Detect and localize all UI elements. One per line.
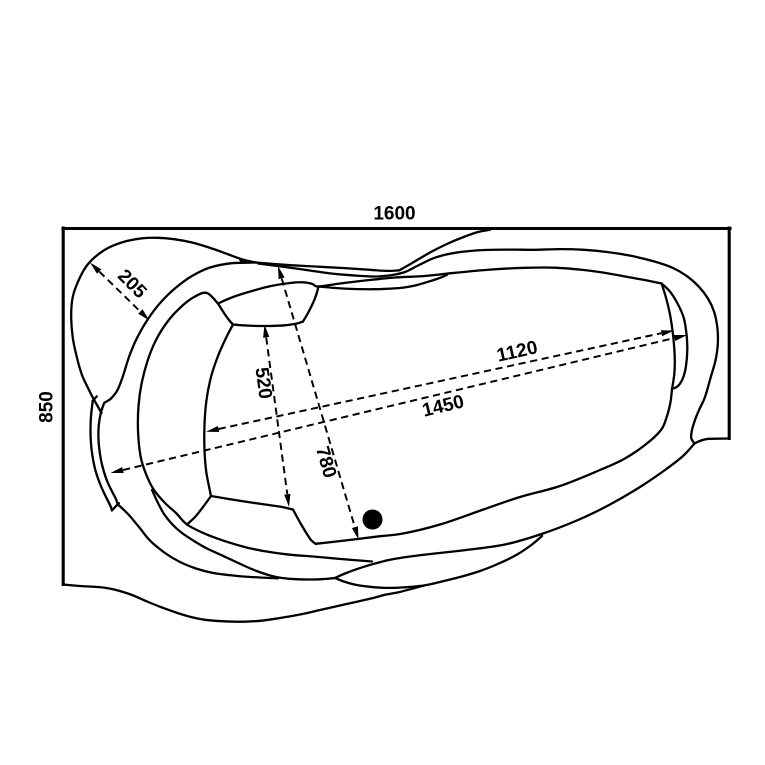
svg-text:520: 520: [250, 366, 275, 400]
svg-text:1600: 1600: [373, 204, 415, 225]
svg-text:850: 850: [37, 391, 58, 423]
